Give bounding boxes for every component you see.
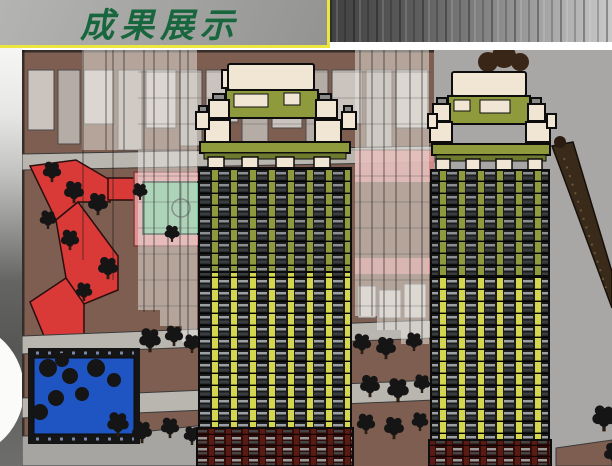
rendering-svg xyxy=(22,50,612,466)
slide-edge-decoration xyxy=(0,48,22,466)
header-metal-band xyxy=(330,0,612,42)
tower-body xyxy=(431,170,549,440)
slide-title: 成果展示 xyxy=(0,0,240,47)
title-box: 成果展示 xyxy=(0,0,330,48)
tower-base xyxy=(197,428,353,466)
rendering-image xyxy=(22,50,612,466)
tower-body xyxy=(199,168,351,428)
edge-arc xyxy=(0,324,22,456)
presentation-slide: 成果展示 xyxy=(0,0,612,466)
tower-base xyxy=(429,440,551,466)
swimming-pool xyxy=(28,348,140,444)
